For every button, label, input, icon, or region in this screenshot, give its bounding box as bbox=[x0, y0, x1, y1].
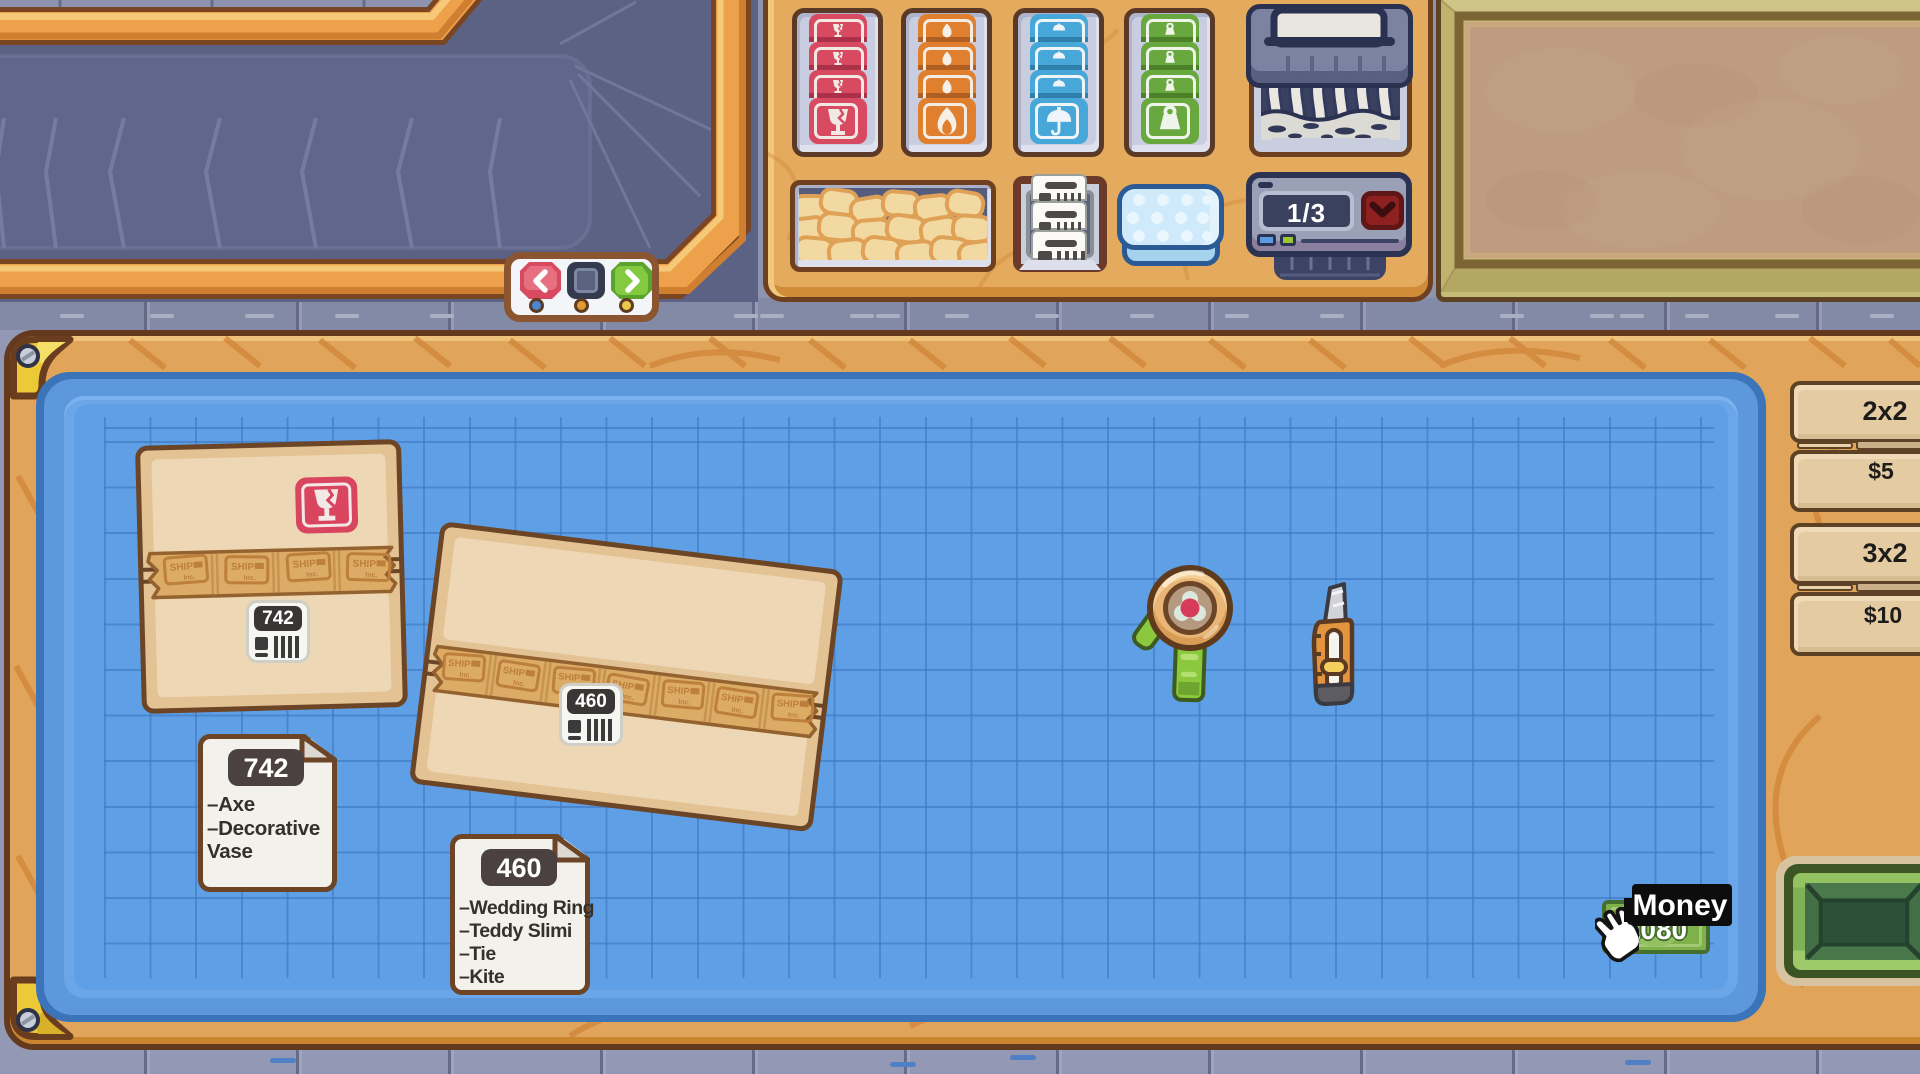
svg-text:SHIP: SHIP bbox=[231, 562, 255, 573]
svg-text:Inc.: Inc. bbox=[678, 699, 691, 707]
svg-text:Inc.: Inc. bbox=[306, 571, 319, 579]
svg-text:SHIP: SHIP bbox=[667, 685, 691, 698]
svg-text:Inc.: Inc. bbox=[365, 572, 377, 579]
svg-text:SHIP: SHIP bbox=[169, 561, 193, 574]
svg-text:SHIP: SHIP bbox=[448, 658, 472, 671]
svg-text:Inc.: Inc. bbox=[183, 574, 196, 582]
svg-text:SHIP: SHIP bbox=[776, 698, 800, 711]
svg-text:SHIP: SHIP bbox=[352, 559, 376, 571]
svg-text:SHIP: SHIP bbox=[292, 558, 316, 570]
svg-text:Inc.: Inc. bbox=[788, 712, 801, 720]
svg-text:Inc.: Inc. bbox=[459, 672, 472, 680]
svg-text:Inc.: Inc. bbox=[244, 575, 256, 582]
